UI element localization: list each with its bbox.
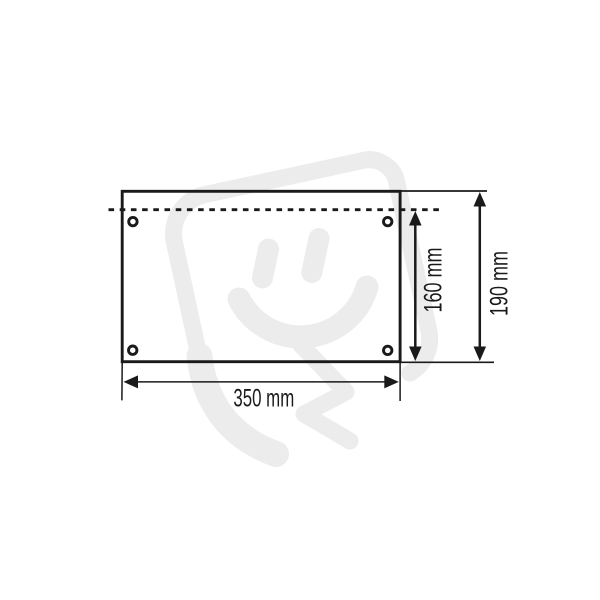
svg-text:350 mm: 350 mm [233,384,294,412]
svg-text:190 mm: 190 mm [484,251,513,316]
svg-text:160 mm: 160 mm [419,248,448,313]
